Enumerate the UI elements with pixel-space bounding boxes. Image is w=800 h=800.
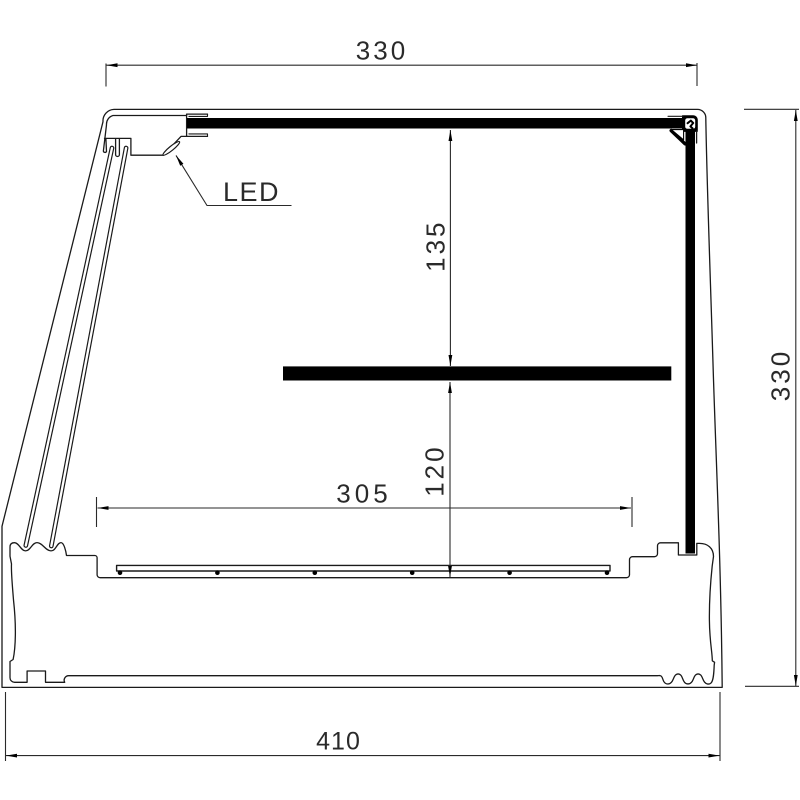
svg-text:410: 410 [316,727,361,755]
svg-text:120: 120 [420,444,450,496]
svg-text:LED: LED [223,177,280,207]
svg-text:330: 330 [356,35,408,65]
svg-text:305: 305 [336,479,391,509]
svg-text:135: 135 [421,220,451,272]
svg-text:330: 330 [766,349,796,401]
